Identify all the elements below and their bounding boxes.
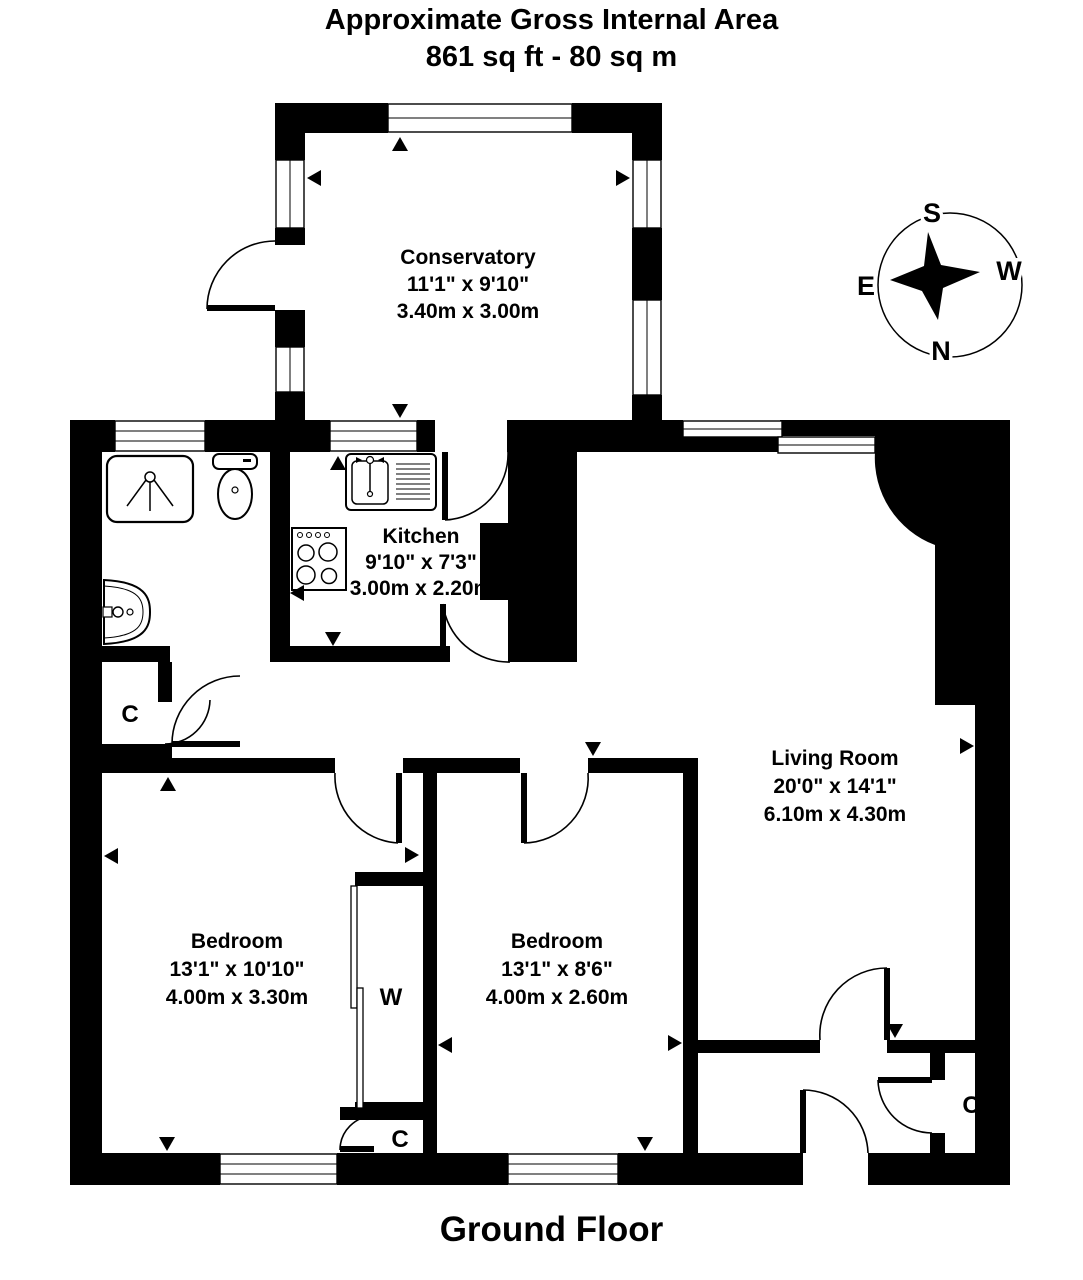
cooker-hob-icon <box>292 528 346 590</box>
conservatory-metric: 3.40m x 3.00m <box>397 300 539 323</box>
bedroom-left-metric: 4.00m x 3.30m <box>166 986 308 1009</box>
bedroom-left-name: Bedroom <box>191 930 283 953</box>
wardrobe-sliding-door-icon <box>351 886 363 1108</box>
conservatory-imperial: 11'1" x 9'10" <box>407 273 529 296</box>
conservatory-door-leaf <box>207 305 275 311</box>
floorplan-page: Approximate Gross Internal Area 861 sq f… <box>0 0 1083 1280</box>
floorplan-svg: Conservatory 11'1" x 9'10" 3.40m x 3.00m… <box>0 0 1083 1280</box>
toilet-icon <box>213 454 257 519</box>
living-room-door-leaf <box>884 968 890 1040</box>
kitchen-name: Kitchen <box>382 525 459 548</box>
shower-tray-icon <box>107 456 193 522</box>
front-door-leaf <box>800 1090 806 1153</box>
bedroom-right-metric: 4.00m x 2.60m <box>486 986 628 1009</box>
entrance-closet-label: C <box>962 1092 979 1119</box>
compass-label-south: S <box>923 198 941 228</box>
floor-label: Ground Floor <box>20 1210 1083 1250</box>
bedroom-left-door-leaf <box>396 773 402 843</box>
kitchen-top-door-leaf <box>442 452 448 520</box>
living-room-metric: 6.10m x 4.30m <box>764 803 906 826</box>
kitchen-metric: 3.00m x 2.20m <box>350 577 492 600</box>
bedroom-right-name: Bedroom <box>511 930 603 953</box>
wardrobe-label: W <box>380 984 403 1011</box>
bedroom-right-door-leaf <box>521 773 527 843</box>
bedroom-right-imperial: 13'1" x 8'6" <box>501 958 613 981</box>
living-room-name: Living Room <box>771 747 898 770</box>
room-labels: Conservatory 11'1" x 9'10" 3.40m x 3.00m… <box>121 246 979 1153</box>
bedroom-left-imperial: 13'1" x 10'10" <box>169 958 304 981</box>
compass-label-east: E <box>857 271 875 301</box>
bedroom-closet-label: C <box>391 1126 408 1153</box>
kitchen-imperial: 9'10" x 7'3" <box>365 551 477 574</box>
bedroom-closet-door-leaf <box>340 1146 374 1152</box>
entrance-closet-door-leaf <box>878 1077 932 1083</box>
bathroom-door-leaf <box>172 741 240 747</box>
compass-label-north: N <box>931 336 951 366</box>
conservatory-name: Conservatory <box>400 246 536 269</box>
hall-closet-label: C <box>121 701 138 728</box>
basin-icon <box>103 580 150 644</box>
compass-rose-icon: S W E N <box>857 198 1022 366</box>
kitchen-sink-icon <box>346 454 436 510</box>
compass-star <box>890 232 980 320</box>
living-room-imperial: 20'0" x 14'1" <box>773 775 896 798</box>
compass-label-west: W <box>996 256 1022 286</box>
